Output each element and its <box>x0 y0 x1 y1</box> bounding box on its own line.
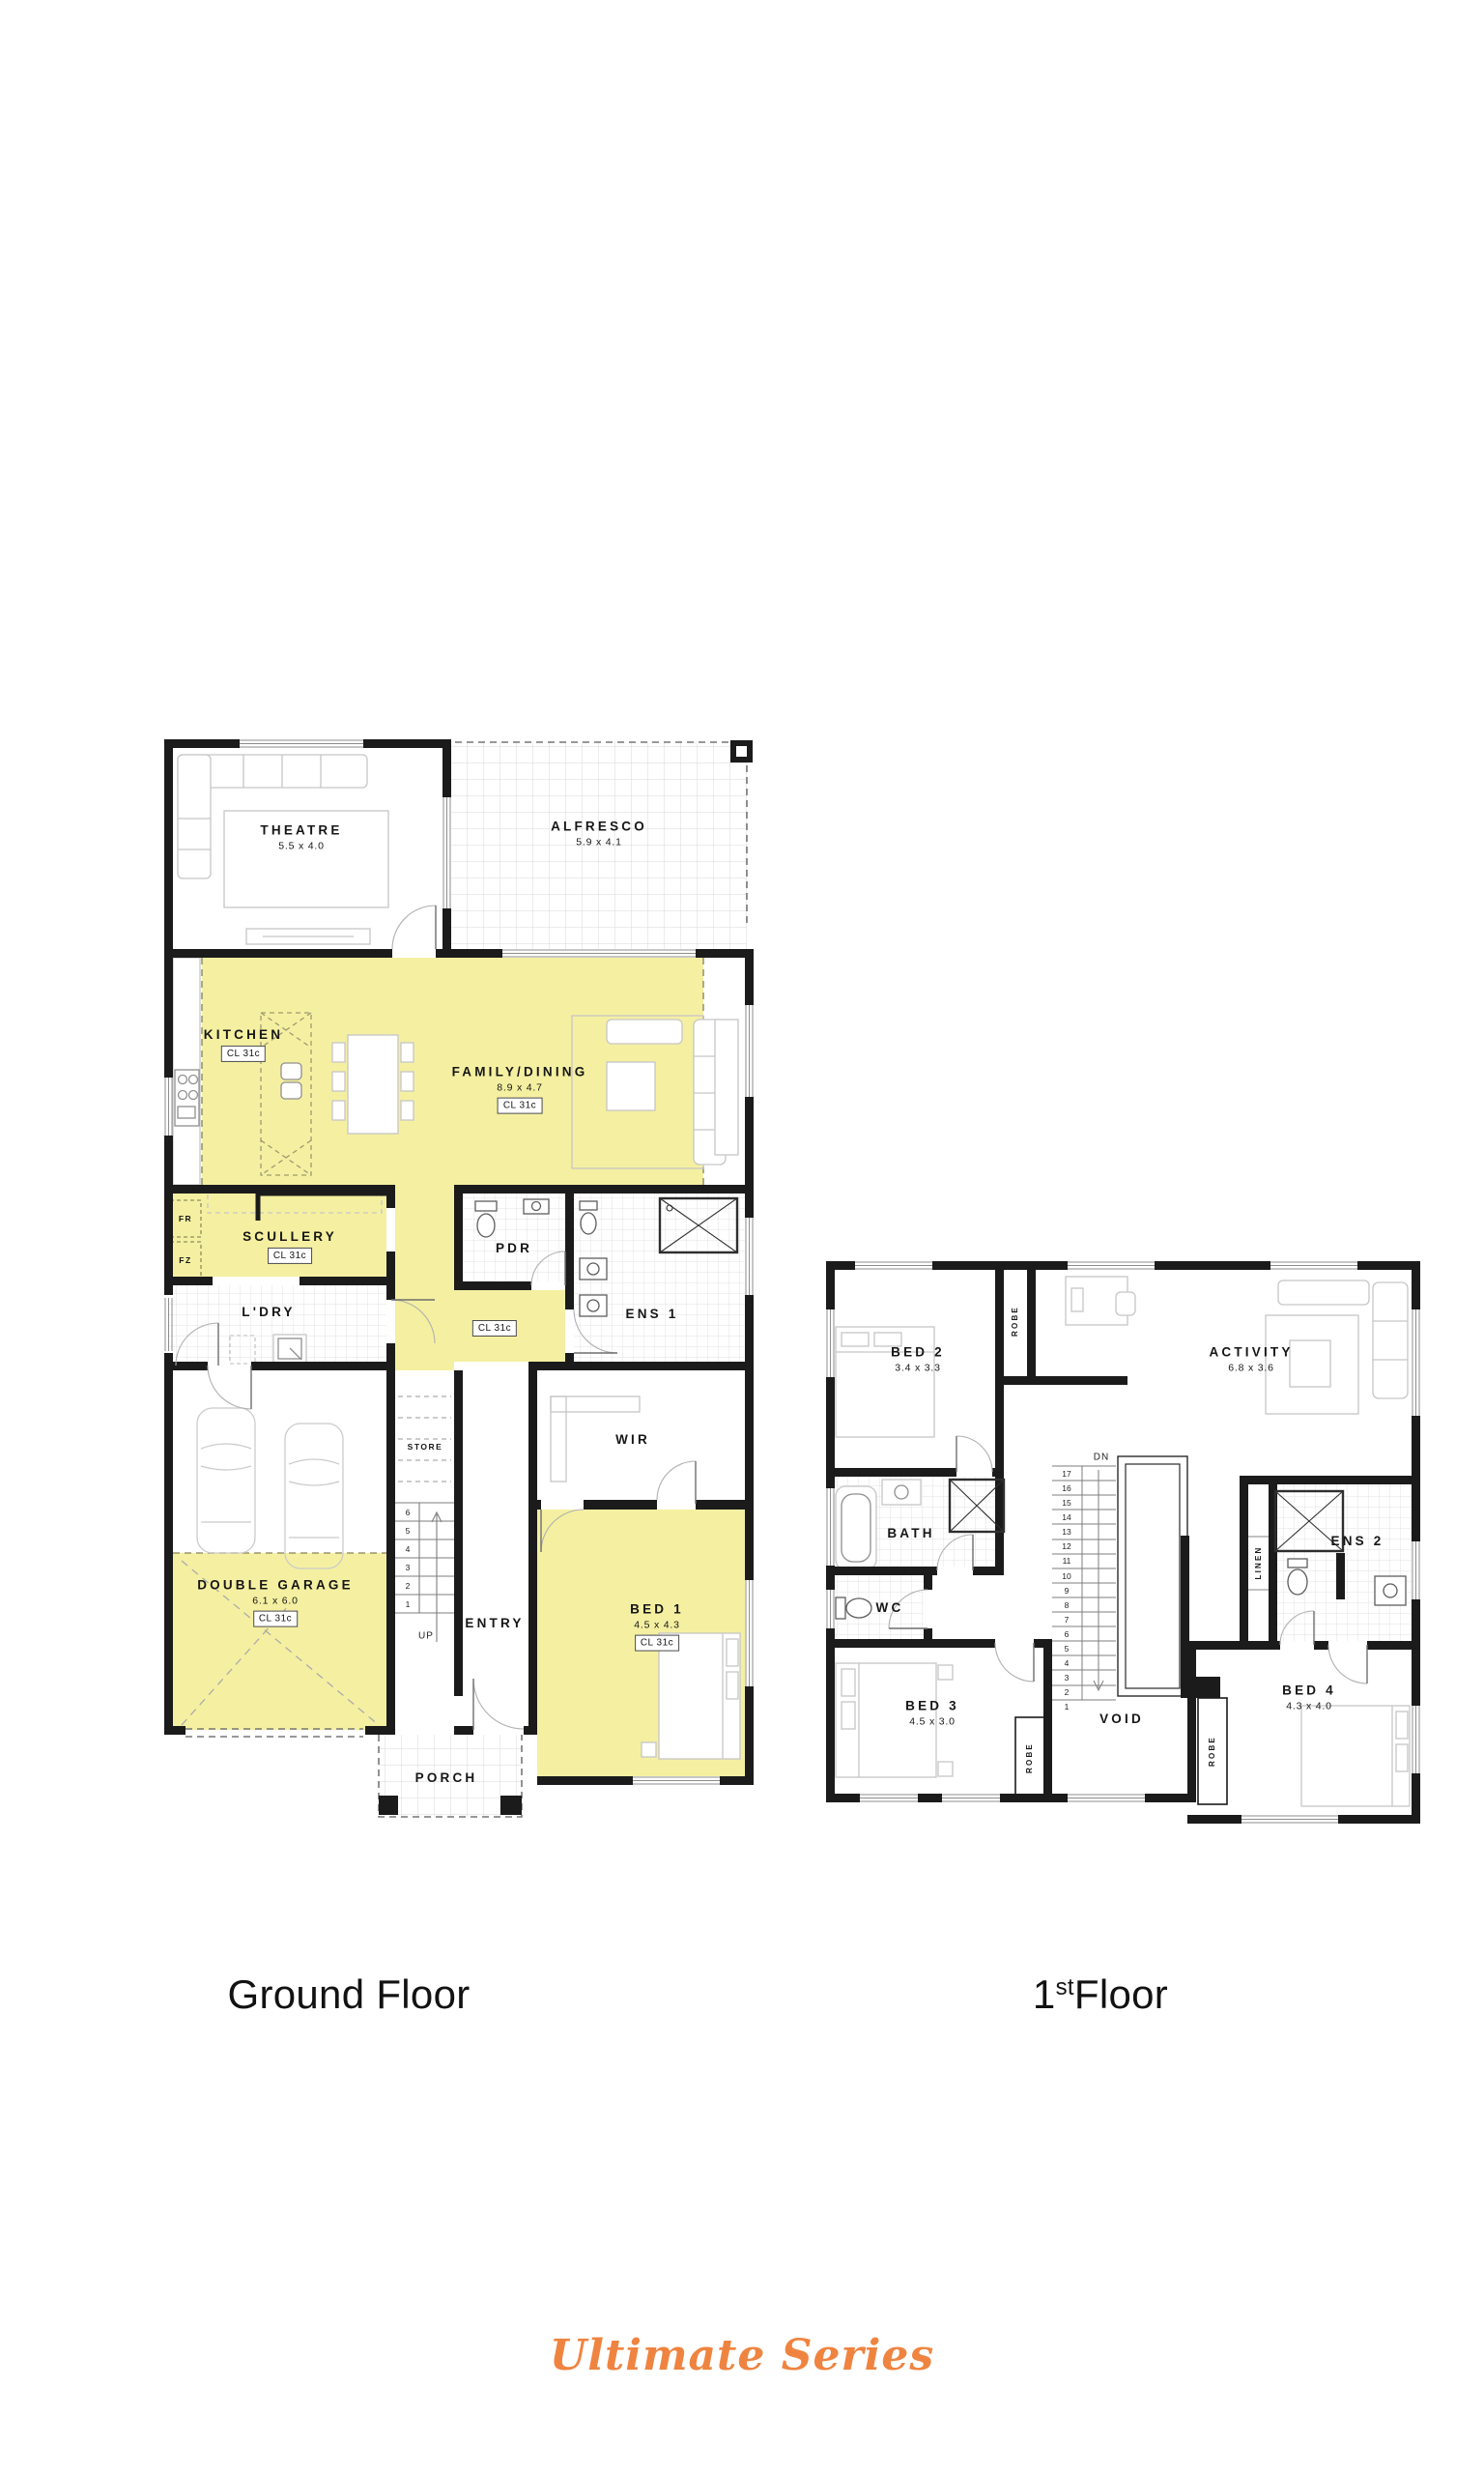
stairs-up-label: UP <box>418 1631 434 1642</box>
linen-label: LINEN <box>1254 1546 1264 1580</box>
gf-stair-number: 5 <box>406 1526 411 1536</box>
theatre-tv-icon <box>246 929 370 944</box>
ceiling-label-kitchen: CL 31c <box>221 1046 266 1062</box>
ff-stair-number: 17 <box>1062 1469 1070 1479</box>
bed3-robe-label: ROBE <box>1025 1742 1035 1773</box>
ff-stair-number: 6 <box>1065 1629 1070 1639</box>
room-label-bed3: BED 3 4.5 x 3.0 <box>905 1699 959 1729</box>
room-label-entry: ENTRY <box>465 1616 524 1631</box>
room-label-wir: WIR <box>615 1432 650 1448</box>
room-label-store: STORE <box>408 1442 443 1452</box>
bed4-bed-icon <box>1301 1706 1410 1806</box>
room-label-void: VOID <box>1099 1712 1144 1727</box>
ff-stair-number: 12 <box>1062 1541 1070 1551</box>
ff-stairs <box>1052 1456 1187 1700</box>
ff-stair-number: 11 <box>1063 1556 1071 1566</box>
room-label-theatre: THEATRE 5.5 x 4.0 <box>260 823 342 853</box>
gf-stair-number: 1 <box>406 1599 411 1609</box>
room-label-laundry: L'DRY <box>242 1305 295 1320</box>
gf-stair-number: 6 <box>406 1508 411 1517</box>
window-bench-icon <box>715 1020 738 1155</box>
ff-stair-number: 13 <box>1062 1527 1070 1537</box>
ceiling-label-bed1: CL 31c <box>635 1634 679 1651</box>
gf-stair-number: 3 <box>406 1563 411 1572</box>
room-label-ens2: ENS 2 <box>1330 1534 1384 1549</box>
first-floor-plan: BED 2 3.4 x 3.3 ROBE ACTIVITY 6.8 x 3.6 … <box>826 1251 1430 1831</box>
ground-floor-drawing <box>155 730 763 1827</box>
bed2-robe-label: ROBE <box>1011 1306 1020 1337</box>
ceiling-label-garage: CL 31c <box>253 1610 298 1626</box>
garage-car-icon <box>197 1408 343 1568</box>
ff-stair-number: 5 <box>1065 1644 1070 1654</box>
ultimate-series-logo: Ultimate Series <box>550 2331 934 2380</box>
cooktop-icon <box>175 1070 199 1126</box>
ff-stair-number: 9 <box>1065 1586 1070 1596</box>
ff-stair-number: 16 <box>1062 1483 1070 1493</box>
wc-toilet-icon <box>836 1597 871 1619</box>
gf-stair-number: 4 <box>406 1544 411 1554</box>
room-label-activity: ACTIVITY 6.8 x 3.6 <box>1209 1345 1293 1375</box>
room-label-scullery: SCULLERY CL 31c <box>243 1229 337 1264</box>
gf-stair-number: 2 <box>406 1581 411 1591</box>
room-label-bed4: BED 4 4.3 x 4.0 <box>1282 1683 1336 1713</box>
ff-stair-number: 3 <box>1065 1673 1070 1683</box>
ground-floor-plan: THEATRE 5.5 x 4.0 ALFRESCO 5.9 x 4.1 KIT… <box>155 730 763 1827</box>
first-floor-caption-number: 1 <box>1033 1971 1056 2017</box>
ff-stair-number: 7 <box>1065 1615 1070 1625</box>
room-label-wc: WC <box>876 1600 904 1616</box>
room-label-garage: DOUBLE GARAGE 6.1 x 6.0 CL 31c <box>197 1578 354 1627</box>
ff-stair-number: 15 <box>1062 1498 1070 1508</box>
ground-floor-caption: Ground Floor <box>227 1971 470 2018</box>
floorplan-page: THEATRE 5.5 x 4.0 ALFRESCO 5.9 x 4.1 KIT… <box>0 0 1484 2474</box>
bed4-robe-label: ROBE <box>1208 1736 1217 1767</box>
fridge-label: FR <box>179 1214 192 1223</box>
hall-ceiling-label: CL 31c <box>472 1317 517 1337</box>
ff-stair-number: 4 <box>1065 1658 1070 1668</box>
room-label-kitchen: KITCHEN CL 31c <box>204 1027 283 1062</box>
ceiling-label-scullery: CL 31c <box>268 1248 312 1264</box>
stairs-dn-label: DN <box>1094 1453 1109 1463</box>
ff-stair-number: 8 <box>1065 1600 1070 1610</box>
room-label-family-dining: FAMILY/DINING 8.9 x 4.7 CL 31c <box>452 1065 588 1114</box>
room-label-ens1: ENS 1 <box>625 1307 678 1322</box>
first-floor-caption-ordinal: st <box>1056 1974 1074 2000</box>
room-label-alfresco: ALFRESCO 5.9 x 4.1 <box>551 820 647 849</box>
first-floor-caption-word: Floor <box>1074 1971 1168 2017</box>
freezer-label: FZ <box>179 1255 191 1265</box>
room-label-porch: PORCH <box>415 1770 478 1786</box>
ff-stair-number: 10 <box>1062 1571 1070 1581</box>
ff-stair-number: 14 <box>1062 1512 1070 1522</box>
desk-icon <box>1066 1277 1135 1325</box>
bed2-bed-icon <box>836 1327 934 1437</box>
room-label-pdr: PDR <box>496 1241 532 1256</box>
ff-stair-number: 1 <box>1065 1702 1070 1712</box>
ceiling-label-family: CL 31c <box>498 1097 542 1113</box>
room-label-bath: BATH <box>887 1526 934 1541</box>
gf-stairs <box>395 1396 454 1642</box>
dining-table-icon <box>332 1035 414 1134</box>
room-label-bed2: BED 2 3.4 x 3.3 <box>891 1345 945 1375</box>
first-floor-caption: 1stFloor <box>1033 1971 1168 2018</box>
room-label-bed1: BED 1 4.5 x 4.3 CL 31c <box>630 1602 684 1652</box>
ff-stair-number: 2 <box>1065 1687 1070 1697</box>
